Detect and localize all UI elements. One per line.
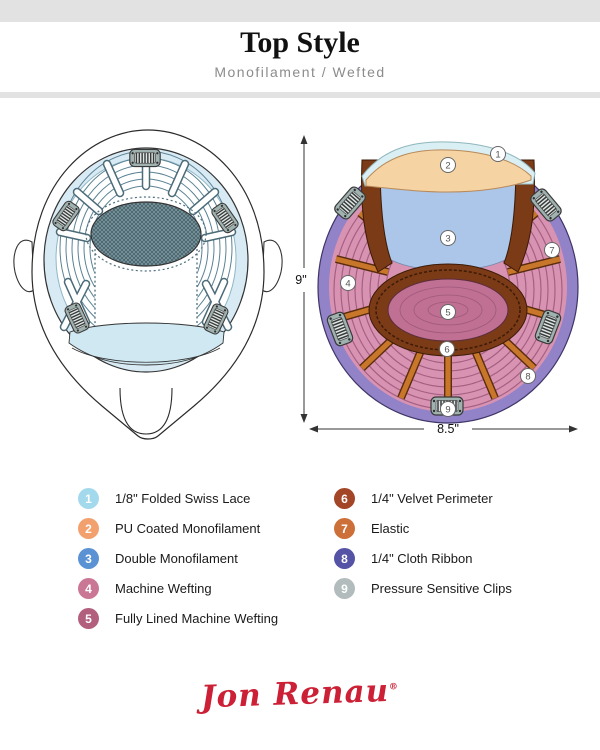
legend-badge-7: 7 (334, 518, 355, 539)
legend-item: 1 1/8" Folded Swiss Lace (78, 488, 328, 509)
legend-badge-6: 6 (334, 488, 355, 509)
clip-icon (130, 149, 160, 166)
legend-badge-5: 5 (78, 608, 99, 629)
legend-label: 1/4" Velvet Perimeter (371, 491, 493, 506)
callout-6: 6 (444, 345, 449, 356)
callout-1: 1 (495, 150, 500, 161)
legend-item: 8 1/4" Cloth Ribbon (334, 548, 584, 569)
left-ear (14, 240, 34, 291)
legend-badge-8: 8 (334, 548, 355, 569)
callout-5: 5 (445, 308, 450, 319)
divider-bar (0, 92, 600, 98)
legend-badge-1: 1 (78, 488, 99, 509)
brand-logo: Jon Renau® (0, 666, 600, 723)
legend-label: 1/4" Cloth Ribbon (371, 551, 472, 566)
cap-construction-diagram: 1 2 3 4 5 6 7 8 9 9" 8.5" (288, 122, 598, 442)
legend-badge-9: 9 (334, 578, 355, 599)
legend-column-right: 6 1/4" Velvet Perimeter 7 Elastic 8 1/4"… (334, 488, 584, 608)
monofilament-top-oval (91, 202, 201, 266)
legend-label: Fully Lined Machine Wefting (115, 611, 278, 626)
legend-item: 4 Machine Wefting (78, 578, 328, 599)
callout-2: 2 (445, 161, 450, 172)
legend-item: 7 Elastic (334, 518, 584, 539)
legend-label: Machine Wefting (115, 581, 212, 596)
callout-4: 4 (345, 279, 350, 290)
height-dimension-label: 9" (295, 273, 306, 287)
page-subtitle: Monofilament / Wefted (0, 64, 600, 80)
callout-3: 3 (445, 234, 450, 245)
page-title: Top Style (0, 26, 600, 60)
legend-label: 1/8" Folded Swiss Lace (115, 491, 250, 506)
legend-badge-2: 2 (78, 518, 99, 539)
registered-mark: ® (389, 682, 399, 692)
top-gray-bar (0, 0, 600, 22)
legend-item: 2 PU Coated Monofilament (78, 518, 328, 539)
legend-item: 9 Pressure Sensitive Clips (334, 578, 584, 599)
callout-7: 7 (549, 246, 554, 257)
legend-label: Double Monofilament (115, 551, 238, 566)
callout-9: 9 (445, 405, 450, 416)
legend-label: PU Coated Monofilament (115, 521, 260, 536)
cap-on-head-diagram (6, 122, 291, 442)
brand-name: Jon Renau (200, 673, 389, 716)
legend-badge-4: 4 (78, 578, 99, 599)
width-dimension-label: 8.5" (437, 422, 459, 436)
callout-8: 8 (525, 372, 530, 383)
legend-label: Pressure Sensitive Clips (371, 581, 512, 596)
legend-badge-3: 3 (78, 548, 99, 569)
legend-item: 3 Double Monofilament (78, 548, 328, 569)
legend-column-left: 1 1/8" Folded Swiss Lace 2 PU Coated Mon… (78, 488, 328, 638)
right-ear (262, 240, 282, 291)
legend-item: 6 1/4" Velvet Perimeter (334, 488, 584, 509)
legend-label: Elastic (371, 521, 409, 536)
legend-item: 5 Fully Lined Machine Wefting (78, 608, 328, 629)
